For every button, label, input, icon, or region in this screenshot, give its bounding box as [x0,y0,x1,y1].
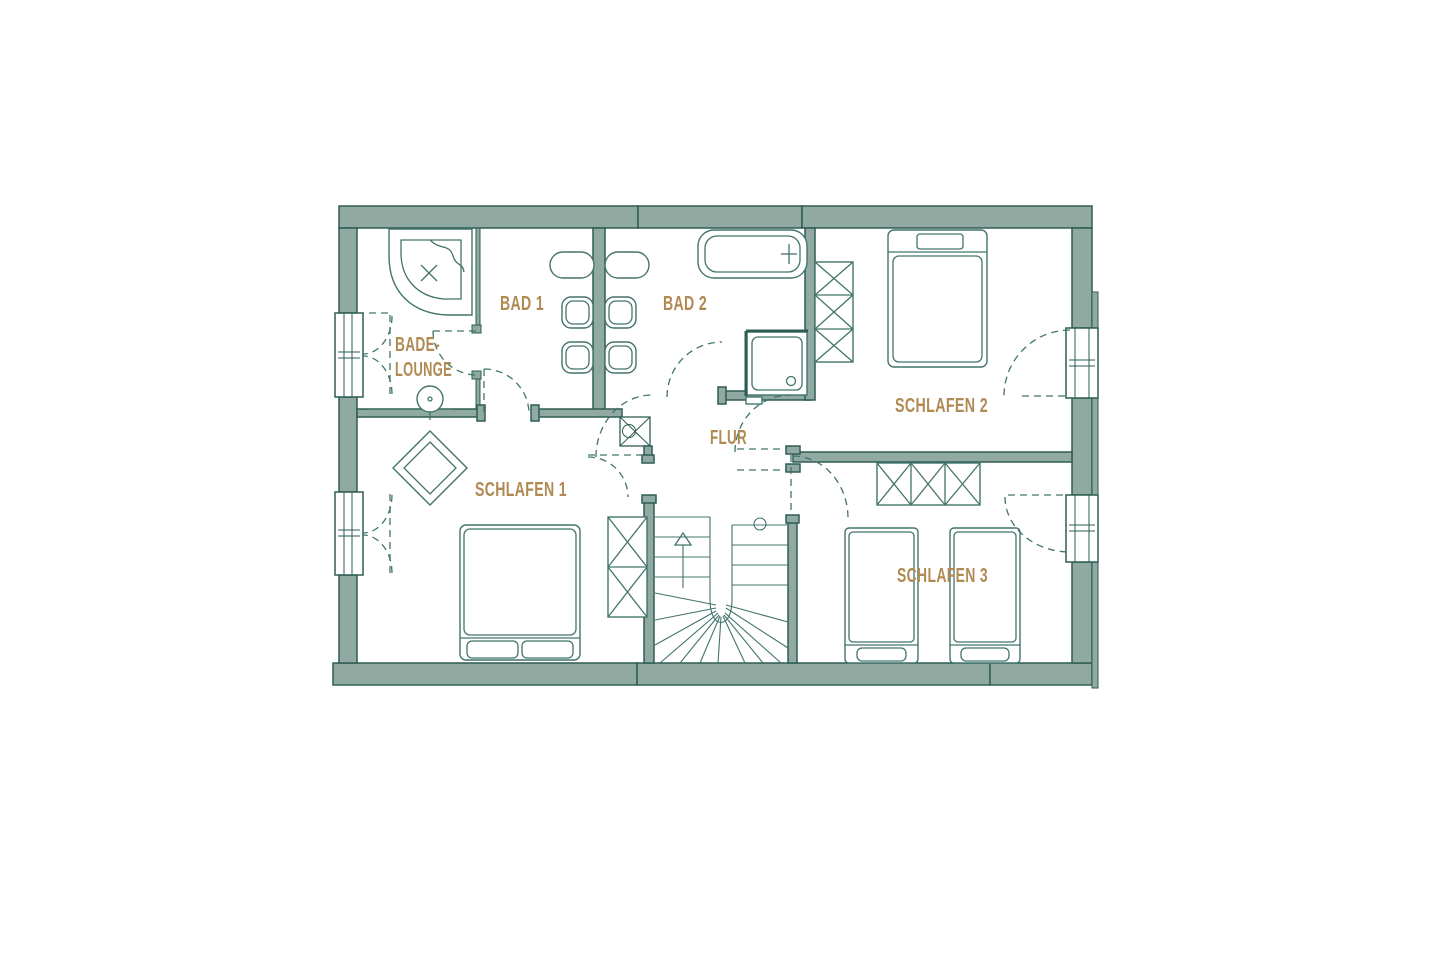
toilet-bad1 [562,297,593,373]
door-bad2 [667,342,722,397]
label-schlafen2: SCHLAFEN 2 [895,395,988,417]
single-bed-schlafen3-right [950,528,1020,663]
double-bed-schlafen1 [460,525,580,660]
washbasin-bad1 [550,252,594,278]
door-bad1 [484,369,529,414]
door-jamb [642,455,654,463]
door-jamb [786,464,800,472]
shower-bad2 [746,331,808,404]
bath-divider-wall [593,228,605,414]
wardrobe-schlafen3 [877,463,980,505]
armchair-schlafen1 [393,431,467,505]
door-jamb [786,515,799,523]
label-bade-lounge-line1: BADE- [395,334,440,356]
floor-plan-page: BADE- LOUNGE BAD 1 BAD 2 FLUR SCHLAFEN 1… [0,0,1440,960]
label-bad1: BAD 1 [500,293,544,315]
corner-bathtub [389,229,472,315]
wardrobe-schlafen1 [608,517,647,617]
window-swing-bade-lounge [363,315,392,394]
newel-post [754,518,766,530]
hinge-mark [472,325,481,333]
staircase [655,517,788,663]
wardrobe-schlafen2 [815,262,853,362]
window-schlafen1 [335,492,363,575]
floor-plan-drawing: BADE- LOUNGE BAD 1 BAD 2 FLUR SCHLAFEN 1… [0,0,1440,960]
toilet-bad2 [605,297,636,373]
window-swing-schlafen1 [363,494,392,573]
door-jamb [718,387,726,404]
window-swing-schlafen2 [1004,330,1070,396]
single-bed-schlafen3-left [845,528,918,663]
door-jamb [531,405,539,421]
label-schlafen3: SCHLAFEN 3 [897,565,988,587]
chimney [620,417,650,446]
label-flur: FLUR [710,427,747,449]
label-bad2: BAD 2 [663,293,707,315]
door-jamb [642,495,656,503]
window-schlafen3 [1066,495,1098,562]
bathtub-bad2 [698,230,807,278]
glass-partition [476,228,480,330]
door-jamb [786,446,800,454]
stair-direction-arrow [675,533,691,588]
washbasin-bad2 [605,252,649,278]
label-bade-lounge-line2: LOUNGE [395,359,452,381]
window-bade-lounge [335,313,363,397]
label-schlafen1: SCHLAFEN 1 [475,479,567,501]
double-bed-schlafen2 [888,230,987,367]
door-schlafen1 [588,455,648,497]
window-schlafen2 [1066,328,1098,398]
